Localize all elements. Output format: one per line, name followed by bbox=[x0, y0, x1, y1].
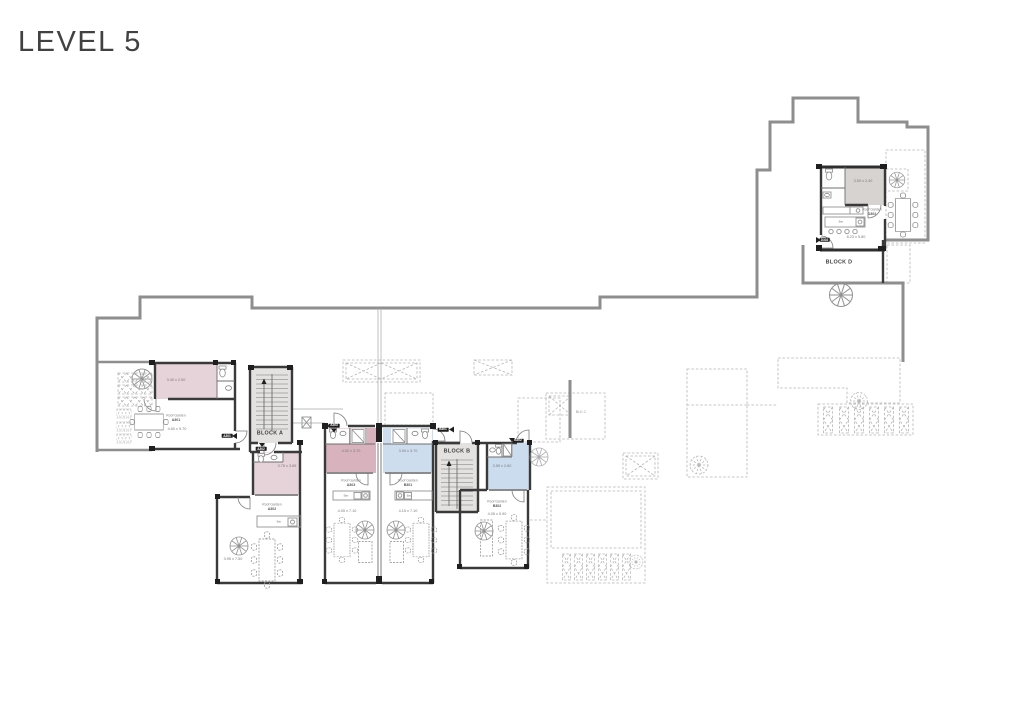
a301-garden-dim: 4.60 x 5.70 bbox=[168, 428, 187, 432]
a303-bar-label: Bar bbox=[344, 494, 349, 497]
d302-room-dim: 3.50 x 2.40 bbox=[854, 180, 873, 184]
a301-garden-no: A301 bbox=[172, 419, 181, 423]
b302-garden-no: B302 bbox=[493, 505, 502, 509]
block-d-label: BLOCK D bbox=[826, 260, 853, 265]
d302-garden-dim: 8.23 x 5.80 bbox=[847, 236, 866, 240]
d302-door-tag: D302 bbox=[819, 238, 830, 242]
a303-garden-no: A303 bbox=[347, 484, 356, 488]
page-title: LEVEL 5 bbox=[18, 26, 142, 59]
a302-bar-label: Bar bbox=[277, 520, 282, 523]
a302-room-dim: 3.75 x 3.65 bbox=[278, 465, 297, 469]
b302-room-dim: 3.55 x 2.60 bbox=[493, 465, 512, 469]
b302-door-tag: B302 bbox=[513, 438, 524, 442]
b301-door-tag: B301 bbox=[438, 427, 449, 431]
room-fills bbox=[155, 167, 885, 512]
b301-bar-label: Bar bbox=[407, 494, 412, 497]
block-a-label: BLOCK A bbox=[257, 431, 283, 436]
b301-room-dim: 3.94 x 3.70 bbox=[399, 450, 418, 454]
lower-roof-dashed-outlines bbox=[343, 150, 925, 583]
b302-garden-dim: 4.05 x 5.90 bbox=[488, 513, 507, 517]
a301-room-dim: 3.40 x 2.50 bbox=[167, 379, 186, 383]
block-b-label: BLOCK B bbox=[444, 449, 471, 454]
a303-garden-dim: 4.05 x 7.10 bbox=[338, 510, 357, 514]
b301-garden-no: B301 bbox=[404, 484, 413, 488]
joint-and-deck-lines bbox=[292, 308, 381, 423]
d302-garden-no: D302 bbox=[868, 213, 877, 217]
block-c-label: BLK C bbox=[576, 411, 586, 415]
floorplan-drawing bbox=[0, 0, 1024, 722]
a303-door-tag: A303 bbox=[329, 423, 340, 427]
b301-garden-dim: 4.15 x 7.10 bbox=[399, 510, 418, 514]
d302-bar-label: Bar bbox=[839, 221, 844, 224]
a301-door-tag: A301 bbox=[222, 434, 233, 438]
floorplan-page: LEVEL 5 BLOCK A BLOCK B BLOCK D BLK C 3.… bbox=[0, 0, 1024, 722]
a302-garden-dim: 3.95 x 7.50 bbox=[224, 558, 243, 562]
a302-garden-no: A302 bbox=[268, 508, 277, 512]
a303-room-dim: 4.02 x 3.70 bbox=[342, 450, 361, 454]
party-wall-joint bbox=[376, 423, 382, 584]
a302-door-tag: A302 bbox=[256, 447, 267, 451]
